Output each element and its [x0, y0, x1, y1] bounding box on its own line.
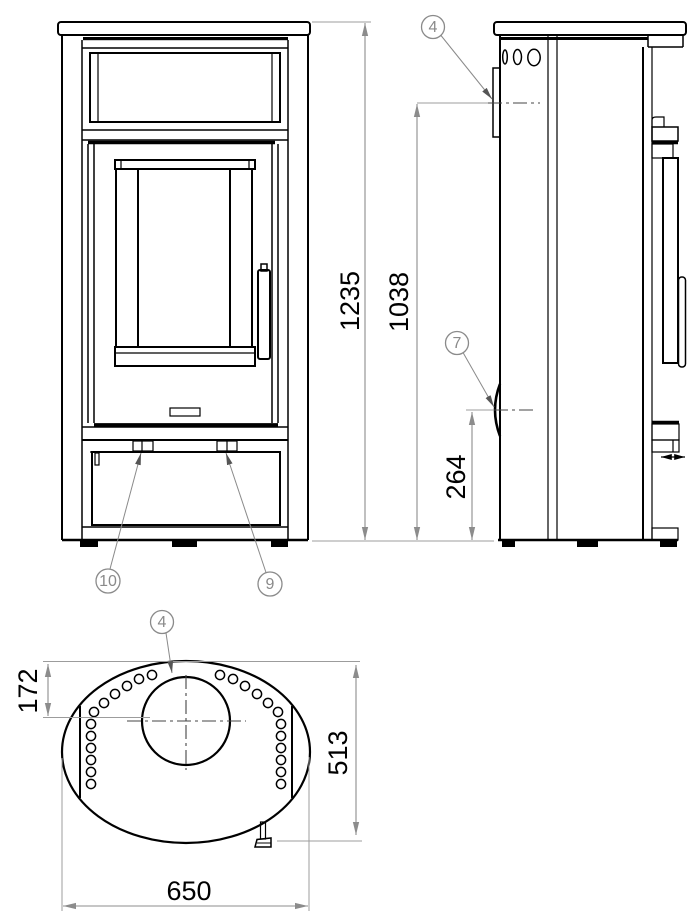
- side-top-band: [501, 37, 648, 40]
- leader-front-left: [110, 453, 141, 569]
- leader-side-top: [441, 36, 492, 100]
- top-flue-centerlines: [127, 675, 246, 770]
- front-foot-left: [80, 541, 98, 547]
- side-air-hole-3: [528, 49, 540, 65]
- front-window-top-bar: [115, 160, 255, 169]
- side-door-sill: [652, 424, 679, 440]
- side-door: [663, 158, 678, 363]
- front-door-handle: [258, 270, 270, 359]
- stove-three-view-drawing: 1235 1038 264 172 513 650 4 7 10 9 4: [0, 0, 700, 918]
- callout-number-front-left: 10: [99, 573, 117, 590]
- side-front-band: [652, 127, 678, 141]
- side-view: [493, 22, 686, 547]
- callouts: 4 7 10 9 4: [96, 16, 494, 674]
- side-top-front-step: [648, 35, 683, 47]
- leader-front-right: [226, 453, 266, 573]
- front-top-band: [83, 37, 288, 40]
- technical-drawing-page: 1235 1038 264 172 513 650 4 7 10 9 4: [0, 0, 700, 918]
- side-top-plate: [494, 22, 686, 35]
- front-lower-compartment: [92, 452, 280, 525]
- front-ash-latch-right: [217, 441, 237, 451]
- top-view: [62, 661, 310, 847]
- callout-number-top-flue: 4: [158, 614, 167, 631]
- reference-centerlines: [488, 103, 540, 410]
- side-pillar-lines: [548, 35, 557, 540]
- dim-label-flue-offset: 172: [13, 668, 43, 713]
- leader-top-flue: [166, 633, 172, 673]
- front-door-latch: [170, 408, 200, 416]
- dim-label-width: 650: [166, 876, 211, 906]
- callout-number-side-rear: 7: [453, 335, 462, 352]
- front-window-posts: [116, 169, 252, 347]
- dim-label-overall-height: 1235: [335, 271, 365, 331]
- front-ash-latch-left: [133, 441, 153, 451]
- side-air-hole-1: [503, 50, 508, 64]
- front-view: [58, 22, 310, 547]
- side-foot-rear: [502, 541, 515, 547]
- front-lower-hook: [95, 453, 99, 465]
- callout-number-front-right: 9: [266, 576, 275, 593]
- front-foot-center: [172, 541, 197, 547]
- dim-label-depth: 513: [323, 730, 353, 775]
- side-foot-mid: [577, 541, 598, 547]
- side-foot-front: [660, 541, 677, 547]
- front-upper-compartment: [90, 53, 280, 122]
- leader-side-rear: [463, 353, 494, 408]
- front-top-plate: [58, 22, 310, 35]
- front-window-bottom-bar: [115, 347, 255, 366]
- callout-number-side-top: 4: [429, 19, 438, 36]
- dim-label-rear-upper-height: 1038: [384, 272, 414, 332]
- side-air-hole-2: [514, 50, 522, 65]
- side-front-band-cap: [652, 117, 664, 127]
- front-divider-band: [82, 130, 288, 140]
- dim-label-rear-lower-height: 264: [441, 454, 471, 499]
- side-door-handle: [679, 277, 686, 367]
- extension-lines: [43, 22, 494, 911]
- side-base-step: [652, 528, 678, 540]
- front-foot-right: [271, 541, 288, 547]
